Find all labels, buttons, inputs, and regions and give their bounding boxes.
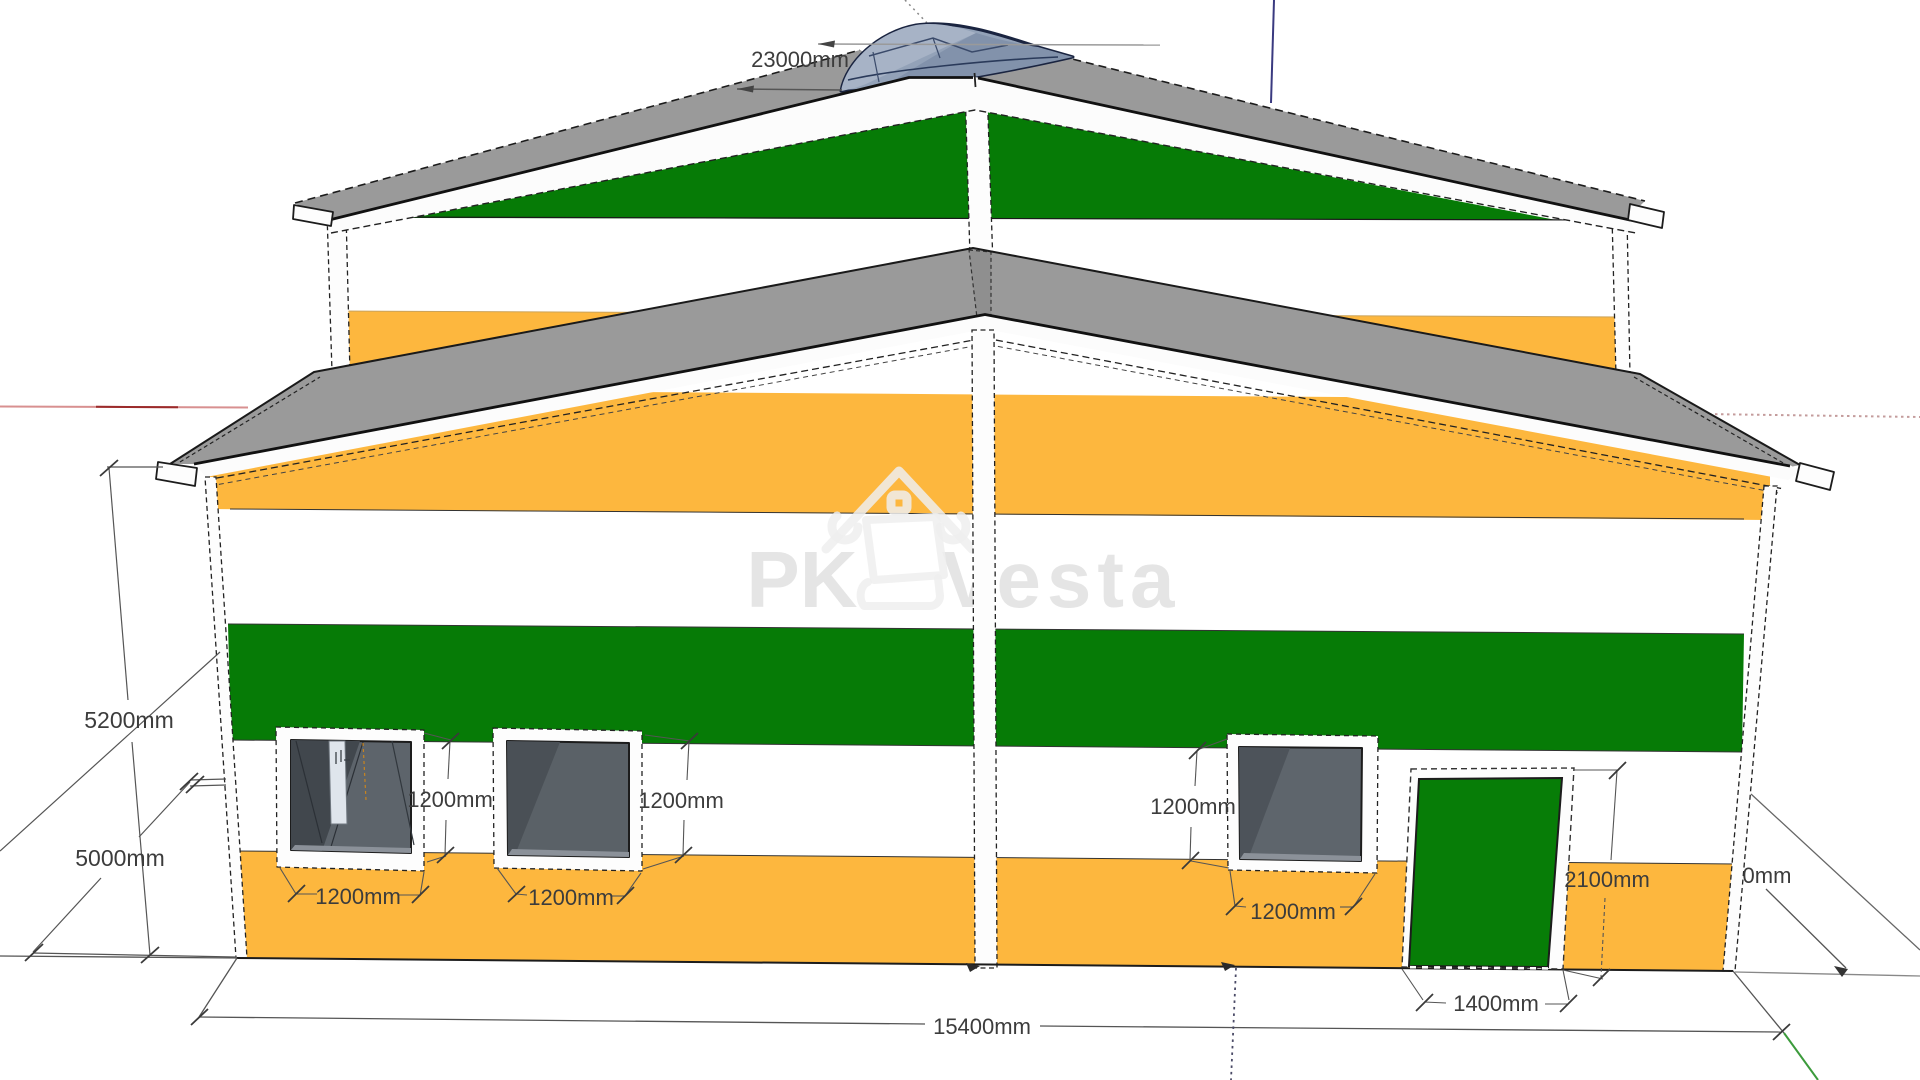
svg-text:1200mm: 1200mm: [315, 884, 401, 909]
svg-text:1200mm: 1200mm: [1250, 899, 1336, 924]
svg-text:5000mm: 5000mm: [75, 845, 164, 871]
svg-text:1200mm: 1200mm: [638, 788, 724, 813]
svg-text:1200mm: 1200mm: [528, 885, 614, 910]
svg-text:15400mm: 15400mm: [933, 1014, 1031, 1039]
svg-text:5200mm: 5200mm: [84, 707, 173, 733]
svg-text:1400mm: 1400mm: [1453, 991, 1539, 1016]
svg-text:PK: PK: [746, 535, 857, 624]
svg-text:1200mm: 1200mm: [407, 787, 493, 812]
svg-text:0mm: 0mm: [1743, 863, 1792, 888]
svg-text:2100mm: 2100mm: [1564, 867, 1650, 892]
svg-text:1200mm: 1200mm: [1150, 794, 1236, 819]
svg-text:23000mm: 23000mm: [751, 47, 849, 72]
